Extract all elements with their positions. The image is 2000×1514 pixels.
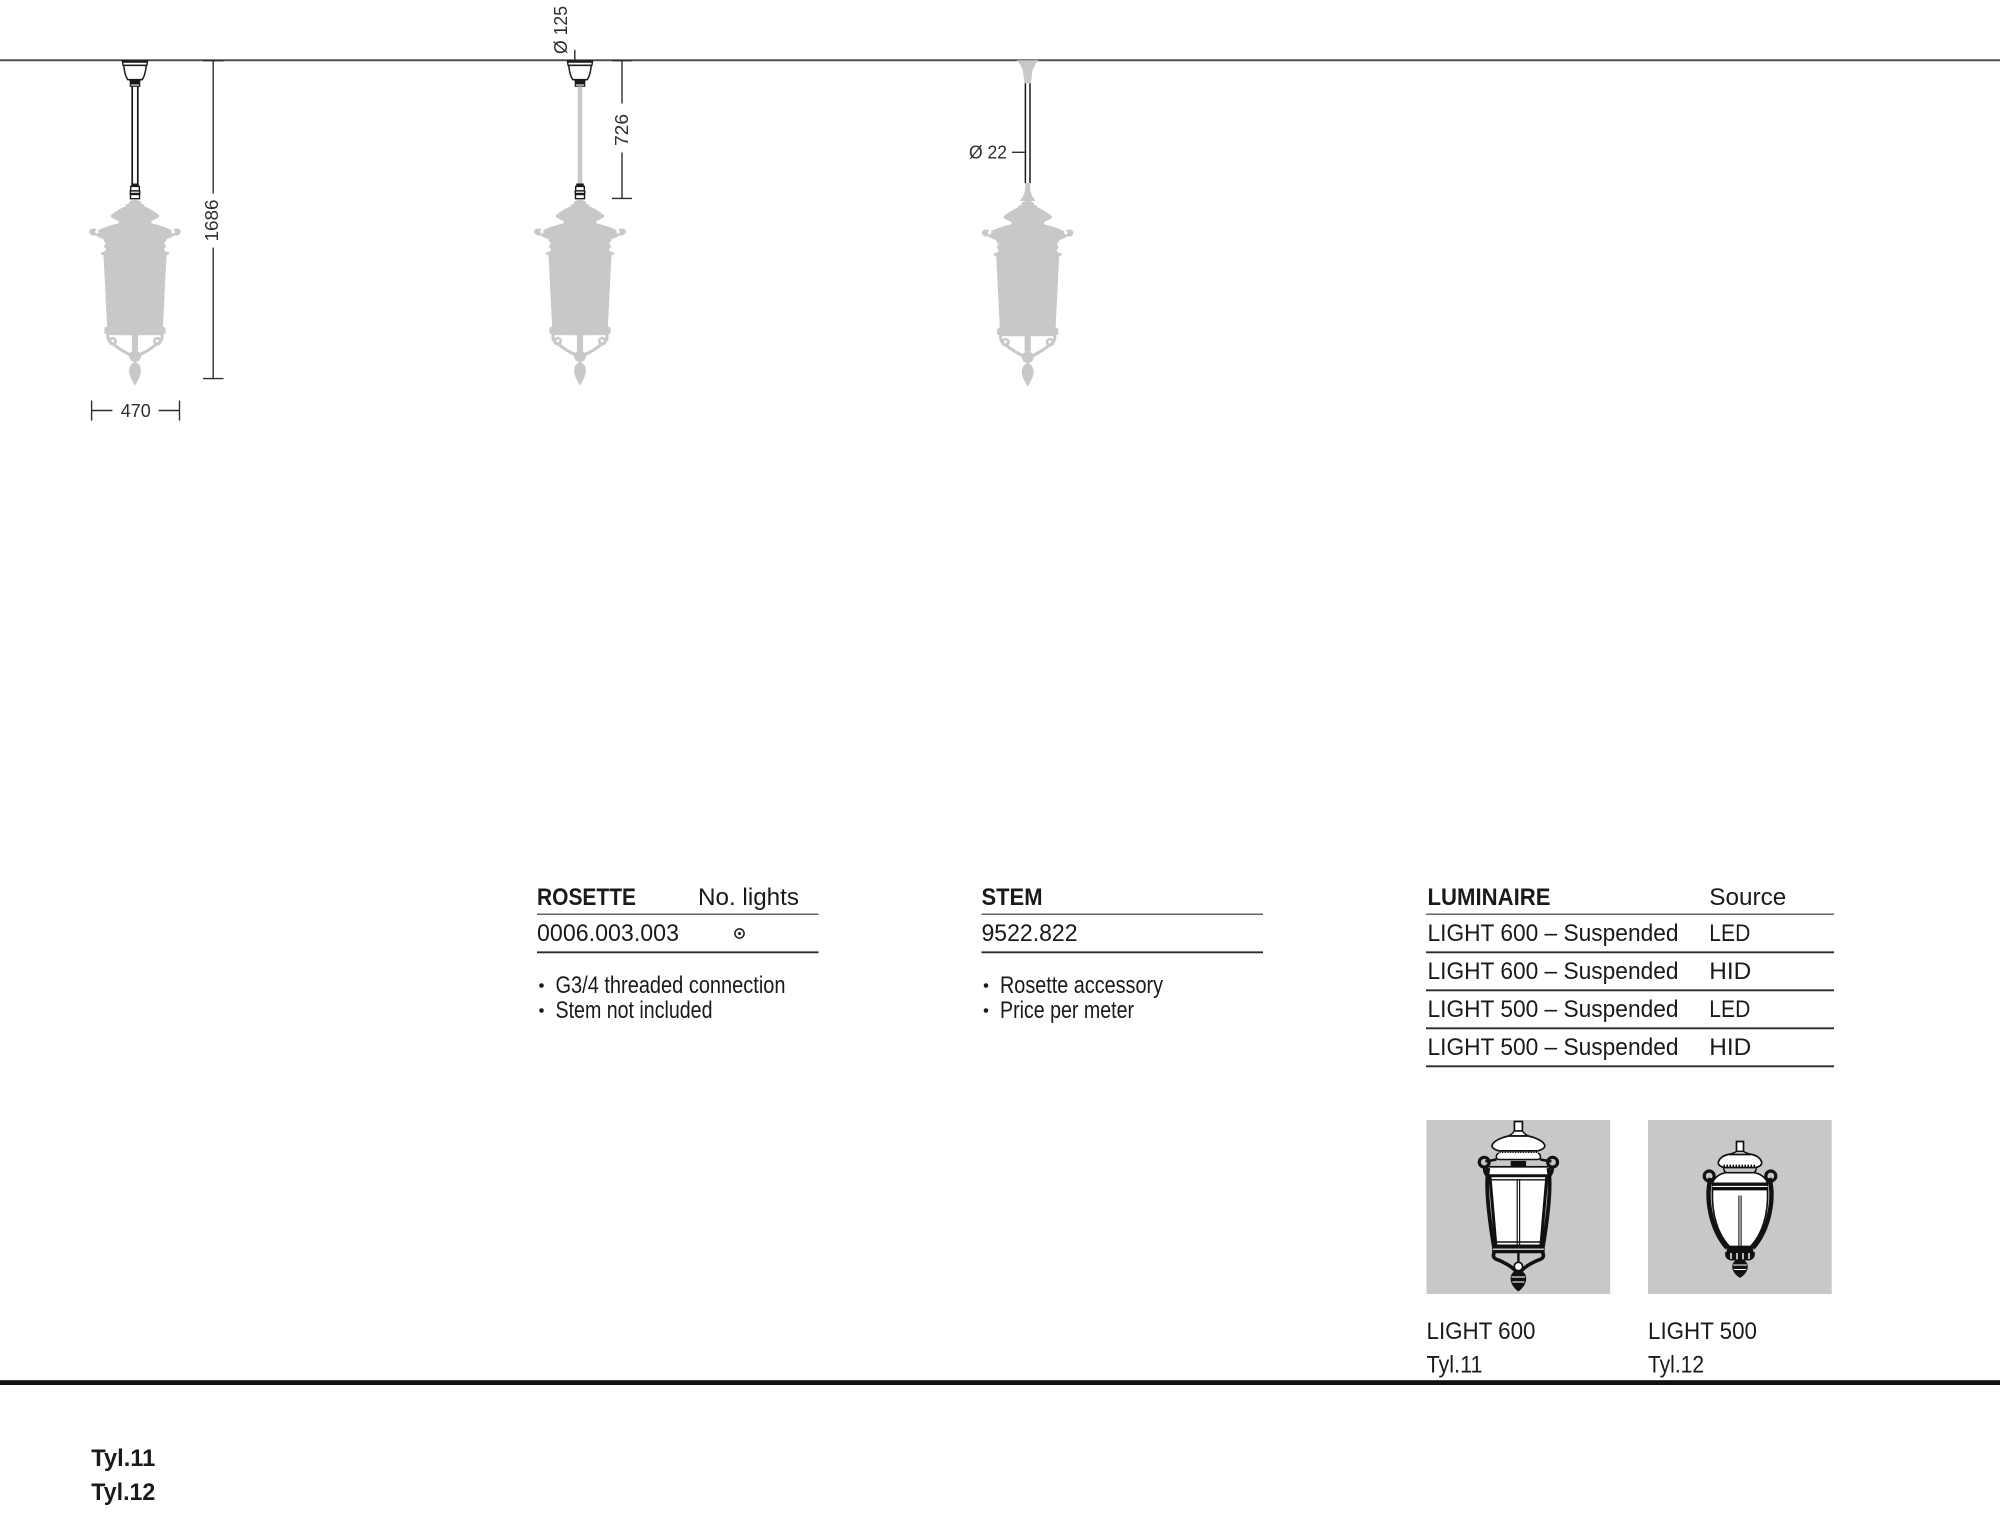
svg-text:LED: LED bbox=[1709, 920, 1750, 947]
svg-text:LIGHT 500 – Suspended: LIGHT 500 – Suspended bbox=[1428, 996, 1679, 1023]
svg-text:Ø 125: Ø 125 bbox=[551, 6, 571, 54]
svg-text:LIGHT 600: LIGHT 600 bbox=[1427, 1318, 1536, 1345]
svg-text:9522.822: 9522.822 bbox=[982, 920, 1078, 947]
svg-text:LUMINAIRE: LUMINAIRE bbox=[1428, 884, 1551, 911]
svg-text:No. lights: No. lights bbox=[698, 884, 799, 911]
svg-text:Tyl.11: Tyl.11 bbox=[91, 1445, 155, 1472]
svg-text:0006.003.003: 0006.003.003 bbox=[537, 920, 679, 947]
svg-text:Rosette accessory: Rosette accessory bbox=[1000, 972, 1164, 999]
svg-text:Price per meter: Price per meter bbox=[1000, 997, 1134, 1024]
svg-text:Tyl.11: Tyl.11 bbox=[1427, 1352, 1483, 1379]
svg-text:LED: LED bbox=[1709, 996, 1750, 1023]
svg-text:STEM: STEM bbox=[982, 884, 1043, 911]
svg-text:1686: 1686 bbox=[202, 200, 222, 242]
svg-text:ROSETTE: ROSETTE bbox=[537, 884, 636, 911]
svg-text:LIGHT 600 – Suspended: LIGHT 600 – Suspended bbox=[1428, 920, 1679, 947]
svg-text:LIGHT 500 – Suspended: LIGHT 500 – Suspended bbox=[1428, 1034, 1679, 1061]
svg-text:Source: Source bbox=[1709, 884, 1786, 911]
svg-text:Tyl.12: Tyl.12 bbox=[1648, 1352, 1704, 1379]
svg-text:HID: HID bbox=[1709, 958, 1751, 985]
svg-text:726: 726 bbox=[612, 114, 632, 146]
svg-text:LIGHT 500: LIGHT 500 bbox=[1648, 1318, 1757, 1345]
svg-text:G3/4 threaded connection: G3/4 threaded connection bbox=[556, 972, 786, 999]
svg-text:Ø 22: Ø 22 bbox=[969, 143, 1007, 163]
svg-text:Stem not included: Stem not included bbox=[556, 997, 713, 1024]
svg-text:470: 470 bbox=[121, 401, 151, 421]
svg-text:LIGHT 600 – Suspended: LIGHT 600 – Suspended bbox=[1428, 958, 1679, 985]
svg-text:Tyl.12: Tyl.12 bbox=[91, 1479, 155, 1506]
svg-text:HID: HID bbox=[1709, 1034, 1751, 1061]
